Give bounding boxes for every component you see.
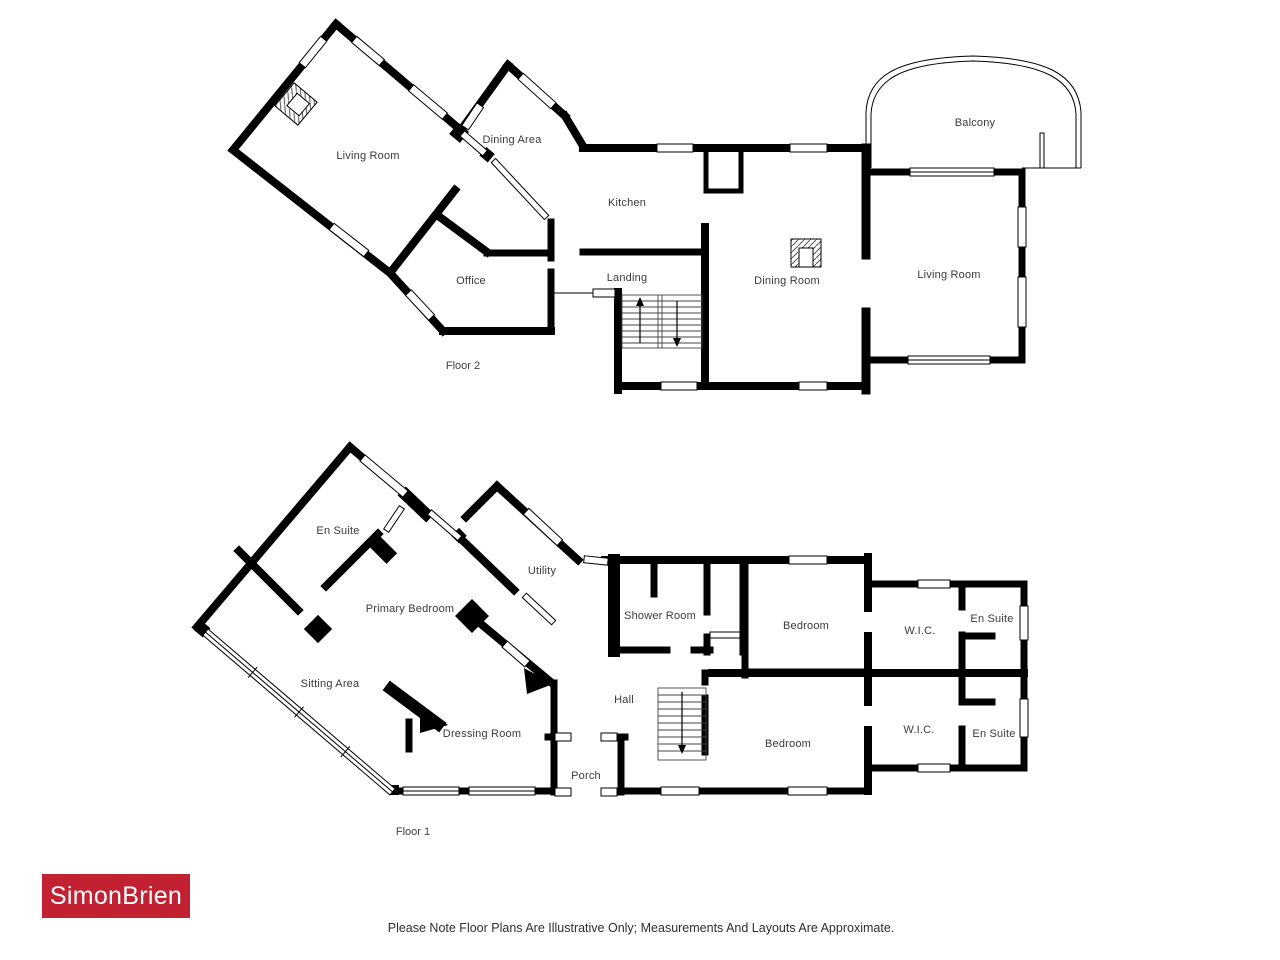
room-label-shower-room: Shower Room bbox=[624, 610, 696, 622]
room-label-office: Office bbox=[456, 275, 486, 287]
floor2-label: Floor 2 bbox=[446, 360, 480, 372]
fireplace-dining-room-icon bbox=[791, 239, 821, 267]
room-label-hall: Hall bbox=[614, 694, 634, 706]
floor1-label: Floor 1 bbox=[396, 826, 430, 838]
floor1-walls bbox=[194, 447, 1024, 797]
simonbrien-logo: SimonBrien bbox=[42, 874, 190, 918]
room-label-wic-bottom: W.I.C. bbox=[903, 724, 934, 736]
room-label-bedroom-top: Bedroom bbox=[783, 620, 829, 632]
room-label-landing: Landing bbox=[607, 272, 648, 284]
room-label-balcony: Balcony bbox=[955, 117, 996, 129]
room-label-en-suite-bottom: En Suite bbox=[972, 728, 1015, 740]
room-label-dining-area: Dining Area bbox=[482, 134, 541, 146]
staircase-floor2 bbox=[622, 295, 702, 348]
floorplan-canvas bbox=[0, 0, 1280, 960]
room-label-en-suite-top: En Suite bbox=[970, 613, 1013, 625]
room-label-en-suite-primary: En Suite bbox=[316, 525, 359, 537]
room-label-kitchen: Kitchen bbox=[608, 197, 646, 209]
staircase-floor1 bbox=[658, 688, 706, 760]
disclaimer-text: Please Note Floor Plans Are Illustrative… bbox=[388, 921, 895, 935]
room-label-utility: Utility bbox=[528, 565, 556, 577]
floor2-plan bbox=[233, 24, 1081, 390]
room-label-living-room-left: Living Room bbox=[336, 150, 399, 162]
room-label-dressing-room: Dressing Room bbox=[443, 728, 521, 740]
room-label-dining-room: Dining Room bbox=[754, 275, 820, 287]
room-label-bedroom-bottom: Bedroom bbox=[765, 738, 811, 750]
room-label-living-room-right: Living Room bbox=[917, 269, 980, 281]
room-label-primary-bedroom: Primary Bedroom bbox=[366, 603, 455, 615]
room-label-wic-top: W.I.C. bbox=[904, 625, 935, 637]
floor1-plan bbox=[194, 447, 1028, 797]
room-label-porch: Porch bbox=[571, 770, 601, 782]
floorplan-page: Living Room Dining Area Kitchen Office L… bbox=[0, 0, 1280, 960]
room-label-sitting-area: Sitting Area bbox=[301, 678, 360, 690]
balcony-arch bbox=[866, 56, 1081, 168]
